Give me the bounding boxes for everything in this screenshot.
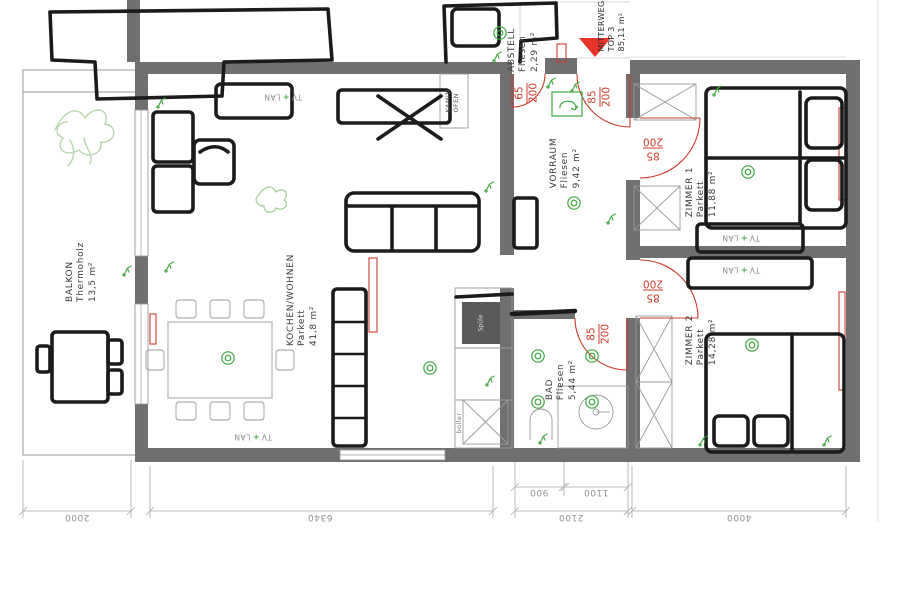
lan-label: LAN bbox=[722, 234, 738, 243]
sink-label: Spüle bbox=[478, 315, 485, 332]
sketch-pillow bbox=[806, 160, 842, 210]
sketch-balcony-chair bbox=[108, 340, 122, 364]
room-material: Thermoholz bbox=[76, 242, 87, 302]
door-label-zimmer2: 85 200 bbox=[643, 277, 663, 302]
floorplan-page: MITTERWEG TOP 3 85,11 m² BALKON Thermoho… bbox=[0, 0, 900, 600]
door-width: 85 bbox=[646, 150, 659, 161]
door-label-abstell: 65 200 bbox=[514, 83, 539, 103]
window-left-upper bbox=[135, 110, 148, 256]
dimensions-group bbox=[19, 460, 850, 518]
wall-entrance-stub bbox=[545, 58, 577, 74]
wall-left-pier-bottom bbox=[135, 404, 148, 452]
sketch-cabinet-1 bbox=[153, 112, 193, 162]
sketch-pillow bbox=[806, 98, 842, 148]
dim-zimmer: 4000 bbox=[727, 512, 752, 522]
toilet bbox=[530, 409, 552, 440]
intercom-icon bbox=[552, 92, 582, 116]
ceiling-light-icon bbox=[742, 166, 754, 178]
room-area: 5,44 m² bbox=[568, 360, 579, 400]
sketch-balcony-chair bbox=[108, 370, 122, 394]
sketch-sideboard bbox=[333, 289, 366, 446]
tv-label: TV bbox=[749, 266, 760, 275]
sketch-balcony-table bbox=[52, 332, 108, 402]
door-label-entrance: 85 200 bbox=[587, 87, 612, 107]
door-width: 65 bbox=[514, 86, 525, 99]
sketch-cabinet-2 bbox=[153, 166, 193, 212]
switch-icon bbox=[486, 376, 495, 386]
chair bbox=[210, 300, 230, 318]
tv-lan-marker: TV + LAN bbox=[234, 433, 272, 442]
room-label-zimmer2: ZIMMER 2 Parkett 14,28 m² bbox=[685, 315, 719, 365]
door-width: 85 bbox=[586, 327, 597, 340]
tv-label: TV bbox=[749, 234, 760, 243]
room-area: 11,88 m² bbox=[708, 167, 719, 217]
door-label-zimmer1: 85 200 bbox=[643, 135, 663, 160]
ceiling-light-icon bbox=[746, 339, 758, 351]
dim-living: 6340 bbox=[308, 512, 333, 522]
door-width: 85 bbox=[646, 292, 659, 303]
sketch-pillow bbox=[754, 416, 788, 446]
boiler-text: boiler bbox=[456, 413, 464, 434]
plan-title: MITTERWEG TOP 3 85,11 m² bbox=[597, 0, 627, 51]
wall-left-pier-top bbox=[135, 62, 148, 110]
door-label-bad: 85 200 bbox=[586, 324, 611, 344]
total-area: 85,11 m² bbox=[617, 0, 627, 51]
sketch-abstell-inner bbox=[452, 9, 499, 46]
switch-icon bbox=[485, 182, 494, 192]
door-height: 200 bbox=[529, 83, 540, 103]
room-area: 41,8 m² bbox=[309, 254, 320, 346]
door-height: 200 bbox=[601, 324, 612, 344]
wall-top bbox=[135, 62, 512, 74]
chair bbox=[244, 300, 264, 318]
chair bbox=[276, 350, 294, 370]
street-name: MITTERWEG bbox=[597, 0, 607, 51]
sketch-vorraum-cabinet bbox=[514, 198, 537, 248]
tv-lan-marker: TV + LAN bbox=[722, 266, 760, 275]
room-name: VORRAUM bbox=[549, 138, 560, 189]
tv-label: TV bbox=[291, 93, 302, 102]
ofen-text: OFEN bbox=[453, 90, 461, 113]
antenna-icon: + bbox=[252, 433, 259, 442]
radiator-living bbox=[369, 258, 377, 332]
ceiling-light-icon bbox=[424, 362, 436, 374]
wall-vorraum-z1-a bbox=[626, 74, 640, 118]
dim-bad-left: 900 bbox=[530, 487, 549, 497]
tv-lan-marker: TV + LAN bbox=[264, 93, 302, 102]
sketch-balcony-chair bbox=[37, 346, 50, 372]
chair bbox=[176, 300, 196, 318]
chair bbox=[176, 402, 196, 420]
switch-icon bbox=[165, 262, 174, 272]
room-material: Fliesen bbox=[518, 28, 529, 72]
room-area: 14,28 m² bbox=[708, 315, 719, 365]
walls-group bbox=[127, 0, 860, 462]
switch-icon bbox=[123, 266, 132, 276]
sketch-bed-z2 bbox=[706, 334, 844, 452]
room-material: Fliesen bbox=[560, 138, 571, 189]
lan-label: LAN bbox=[722, 266, 738, 275]
wall-bottom bbox=[135, 448, 860, 462]
room-label-vorraum: VORRAUM Fliesen 9,42 m² bbox=[549, 138, 583, 189]
sketch-x-mark bbox=[378, 96, 441, 139]
wall-top-right bbox=[630, 60, 860, 74]
room-name: KOCHEN/WOHNEN bbox=[286, 254, 297, 346]
fireplace-label: KAMIN OFEN bbox=[445, 90, 461, 113]
door-height: 200 bbox=[643, 135, 663, 146]
room-area: 2,29 m² bbox=[530, 28, 541, 72]
lan-label: LAN bbox=[264, 93, 280, 102]
antenna-icon: + bbox=[740, 266, 747, 275]
room-material: Parkett bbox=[696, 315, 707, 365]
sketch-bad-wall-stroke bbox=[512, 311, 575, 314]
room-name: ZIMMER 2 bbox=[685, 315, 696, 365]
ceiling-light-icon bbox=[532, 350, 544, 362]
dimension-ticks bbox=[19, 483, 850, 515]
switch-icon bbox=[493, 52, 502, 62]
room-name: BALKON bbox=[65, 242, 76, 302]
switch-icon bbox=[539, 434, 548, 444]
door-height: 200 bbox=[602, 87, 613, 107]
ceiling-light-icon bbox=[532, 396, 544, 408]
dim-balkon: 2000 bbox=[65, 512, 90, 522]
lan-label: LAN bbox=[234, 433, 250, 442]
room-label-balkon: BALKON Thermoholz 13,5 m² bbox=[65, 242, 99, 302]
chair bbox=[146, 350, 164, 370]
antenna-icon: + bbox=[282, 93, 289, 102]
switch-icon bbox=[823, 436, 832, 446]
room-name: ZIMMER 1 bbox=[685, 167, 696, 217]
tv-label: TV bbox=[261, 433, 272, 442]
switch-icon bbox=[607, 214, 616, 224]
room-label-abstell: ABSTELL Fliesen 2,29 m² bbox=[507, 28, 541, 72]
plant-living bbox=[256, 187, 286, 212]
room-material: Parkett bbox=[696, 167, 707, 217]
dining-table bbox=[168, 322, 272, 398]
sink-text: Spüle bbox=[478, 315, 485, 332]
door-width: 85 bbox=[587, 90, 598, 103]
boiler-label: boiler bbox=[456, 413, 464, 434]
radiator-left bbox=[150, 314, 156, 344]
sketch-pillow bbox=[714, 416, 748, 446]
room-label-zimmer1: ZIMMER 1 Parkett 11,88 m² bbox=[685, 167, 719, 217]
door-height: 200 bbox=[643, 277, 663, 288]
sketch-sofa bbox=[346, 193, 479, 251]
switch-icon bbox=[157, 98, 166, 108]
room-material: Fliesen bbox=[556, 360, 567, 400]
room-label-bad: BAD Fliesen 5,44 m² bbox=[545, 360, 579, 400]
wall-left-pier-mid bbox=[135, 256, 148, 304]
dim-bad-total: 2100 bbox=[559, 512, 584, 522]
room-name: BAD bbox=[545, 360, 556, 400]
room-material: Parkett bbox=[297, 254, 308, 346]
chair bbox=[244, 402, 264, 420]
ceiling-light-icon bbox=[222, 352, 234, 364]
ceiling-light-icon bbox=[586, 396, 598, 408]
room-area: 13,5 m² bbox=[88, 242, 99, 302]
unit-number: TOP 3 bbox=[607, 0, 617, 51]
switch-icon bbox=[547, 78, 556, 88]
room-name: ABSTELL bbox=[507, 28, 518, 72]
antenna-icon: + bbox=[740, 234, 747, 243]
tv-lan-marker: TV + LAN bbox=[722, 234, 760, 243]
wall-vorraum-z1-b bbox=[626, 180, 640, 260]
wall-right bbox=[846, 60, 860, 462]
dim-bad-right: 1100 bbox=[584, 487, 609, 497]
cad-furniture-group bbox=[146, 74, 696, 448]
room-area: 9,42 m² bbox=[572, 138, 583, 189]
room-label-kochen-wohnen: KOCHEN/WOHNEN Parkett 41,8 m² bbox=[286, 254, 320, 346]
plant-balcony bbox=[55, 110, 114, 166]
chair bbox=[210, 402, 230, 420]
ceiling-light-icon bbox=[568, 197, 580, 209]
